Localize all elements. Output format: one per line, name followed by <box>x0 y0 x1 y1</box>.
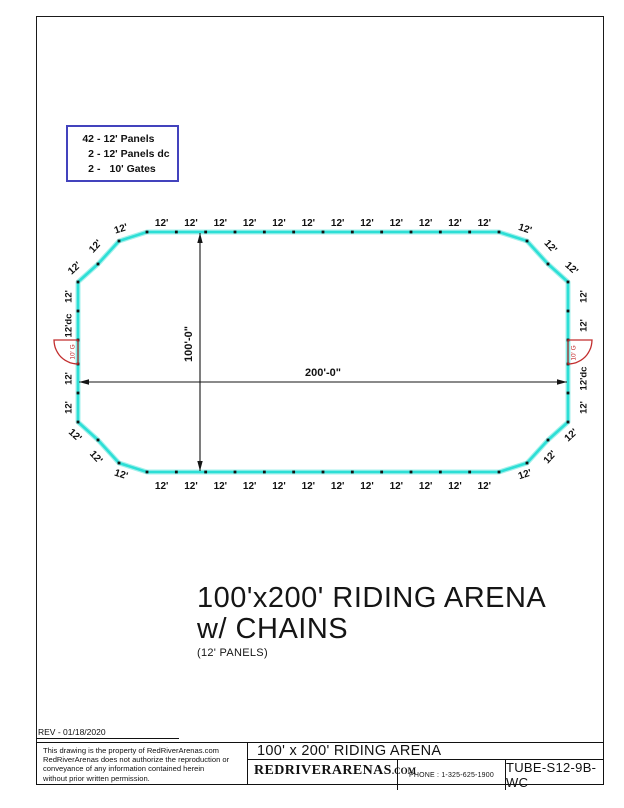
company-name: REDRIVERARENAS.COM <box>248 760 398 790</box>
legend-qty: 2 <box>68 147 94 162</box>
svg-text:12': 12' <box>419 218 433 229</box>
svg-text:12': 12' <box>419 481 433 492</box>
svg-text:12': 12' <box>87 449 104 466</box>
title-block: This drawing is the property of RedRiver… <box>36 742 604 785</box>
height-dimension: 100'-0" <box>183 326 195 362</box>
copyright-line: conveyance of any information contained … <box>43 764 241 773</box>
svg-text:12': 12' <box>579 401 590 414</box>
svg-text:12': 12' <box>517 222 533 237</box>
main-title-subtitle: (12' PANELS) <box>197 647 546 660</box>
svg-text:12': 12' <box>562 260 579 277</box>
title-block-bottom-row: REDRIVERARENAS.COM PHONE : 1-325-625-190… <box>248 760 603 790</box>
svg-text:12': 12' <box>542 449 559 466</box>
legend-desc: 10' Gates <box>104 162 156 177</box>
svg-text:12': 12' <box>541 238 558 255</box>
svg-text:12': 12' <box>563 427 580 444</box>
svg-text:12': 12' <box>579 290 590 303</box>
arena-drawing: 12'12'12'12'12'12'12'12'12'12'12'12'12'1… <box>0 0 624 808</box>
main-title-line2: w/ CHAINS <box>197 614 546 645</box>
legend-qty: 42 <box>68 132 94 147</box>
part-number: TUBE-S12-9B-WC <box>506 760 603 790</box>
legend-qty: 2 <box>68 162 94 177</box>
panel-joints <box>77 231 570 474</box>
gates: 10' G10' G <box>54 340 592 364</box>
dimension-lines: 200'-0"100'-0" <box>79 233 567 471</box>
svg-text:12': 12' <box>390 218 404 229</box>
svg-text:12': 12' <box>478 481 492 492</box>
drawing-sheet: 12'12'12'12'12'12'12'12'12'12'12'12'12'1… <box>0 0 624 808</box>
svg-text:12': 12' <box>360 218 374 229</box>
legend-item-gates: 2-10' Gates <box>68 162 177 177</box>
legend-box: 42-12' Panels 2-12' Panels dc 2-10' Gate… <box>66 125 179 182</box>
legend-desc: 12' Panels dc <box>104 147 170 162</box>
title-block-drawing-title: 100' x 200' RIDING ARENA <box>248 743 603 760</box>
copyright-line: This drawing is the property of RedRiver… <box>43 746 241 755</box>
svg-text:12': 12' <box>214 481 228 492</box>
svg-text:12': 12' <box>448 218 462 229</box>
svg-text:12': 12' <box>113 222 129 237</box>
panel-labels: 12'12'12'12'12'12'12'12'12'12'12'12'12'1… <box>64 218 590 492</box>
revision-note: REV - 01/18/2020 <box>36 727 179 739</box>
legend-item-panels: 42-12' Panels <box>68 132 177 147</box>
svg-text:12': 12' <box>243 218 257 229</box>
svg-text:12': 12' <box>66 260 83 277</box>
width-dimension: 200'-0" <box>305 367 341 379</box>
company-name-main: REDRIVERARENAS <box>254 763 392 779</box>
svg-text:12': 12' <box>390 481 404 492</box>
svg-text:12': 12' <box>113 468 129 483</box>
svg-text:12': 12' <box>87 238 104 255</box>
svg-text:12'dc: 12'dc <box>64 314 75 338</box>
svg-text:12': 12' <box>478 218 492 229</box>
svg-text:12': 12' <box>272 218 286 229</box>
svg-text:12': 12' <box>66 427 83 444</box>
title-block-right: 100' x 200' RIDING ARENA REDRIVERARENAS.… <box>248 743 603 784</box>
legend-item-panels-dc: 2-12' Panels dc <box>68 147 177 162</box>
svg-text:12': 12' <box>64 372 75 385</box>
svg-text:12': 12' <box>272 481 286 492</box>
svg-text:12': 12' <box>331 218 345 229</box>
svg-text:12': 12' <box>331 481 345 492</box>
legend-separator: - <box>94 147 104 162</box>
svg-text:12': 12' <box>184 481 198 492</box>
gate-right-label: 10' G <box>571 345 578 360</box>
svg-text:12': 12' <box>214 218 228 229</box>
svg-text:12': 12' <box>64 401 75 414</box>
copyright-notice: This drawing is the property of RedRiver… <box>37 743 248 784</box>
arena-wall <box>78 232 568 472</box>
svg-text:12': 12' <box>184 218 198 229</box>
main-title-line1: 100'x200' RIDING ARENA <box>197 583 546 614</box>
gate-left-label: 10' G <box>70 344 77 359</box>
svg-text:12': 12' <box>64 290 75 303</box>
svg-text:12': 12' <box>155 481 169 492</box>
svg-text:12': 12' <box>360 481 374 492</box>
legend-separator: - <box>94 132 104 147</box>
svg-text:12': 12' <box>517 468 533 483</box>
svg-text:12': 12' <box>155 218 169 229</box>
copyright-line: without prior written permission. <box>43 774 241 783</box>
main-title: 100'x200' RIDING ARENA w/ CHAINS (12' PA… <box>197 583 546 660</box>
phone-number: PHONE : 1-325-625-1900 <box>398 760 506 790</box>
svg-text:12': 12' <box>243 481 257 492</box>
legend-separator: - <box>94 162 104 177</box>
svg-text:12': 12' <box>302 218 316 229</box>
svg-text:12': 12' <box>448 481 462 492</box>
svg-text:12'dc: 12'dc <box>579 367 590 391</box>
copyright-line: RedRiverArenas does not authorize the re… <box>43 755 241 764</box>
svg-text:12': 12' <box>579 319 590 332</box>
svg-text:12': 12' <box>302 481 316 492</box>
legend-desc: 12' Panels <box>104 132 155 147</box>
